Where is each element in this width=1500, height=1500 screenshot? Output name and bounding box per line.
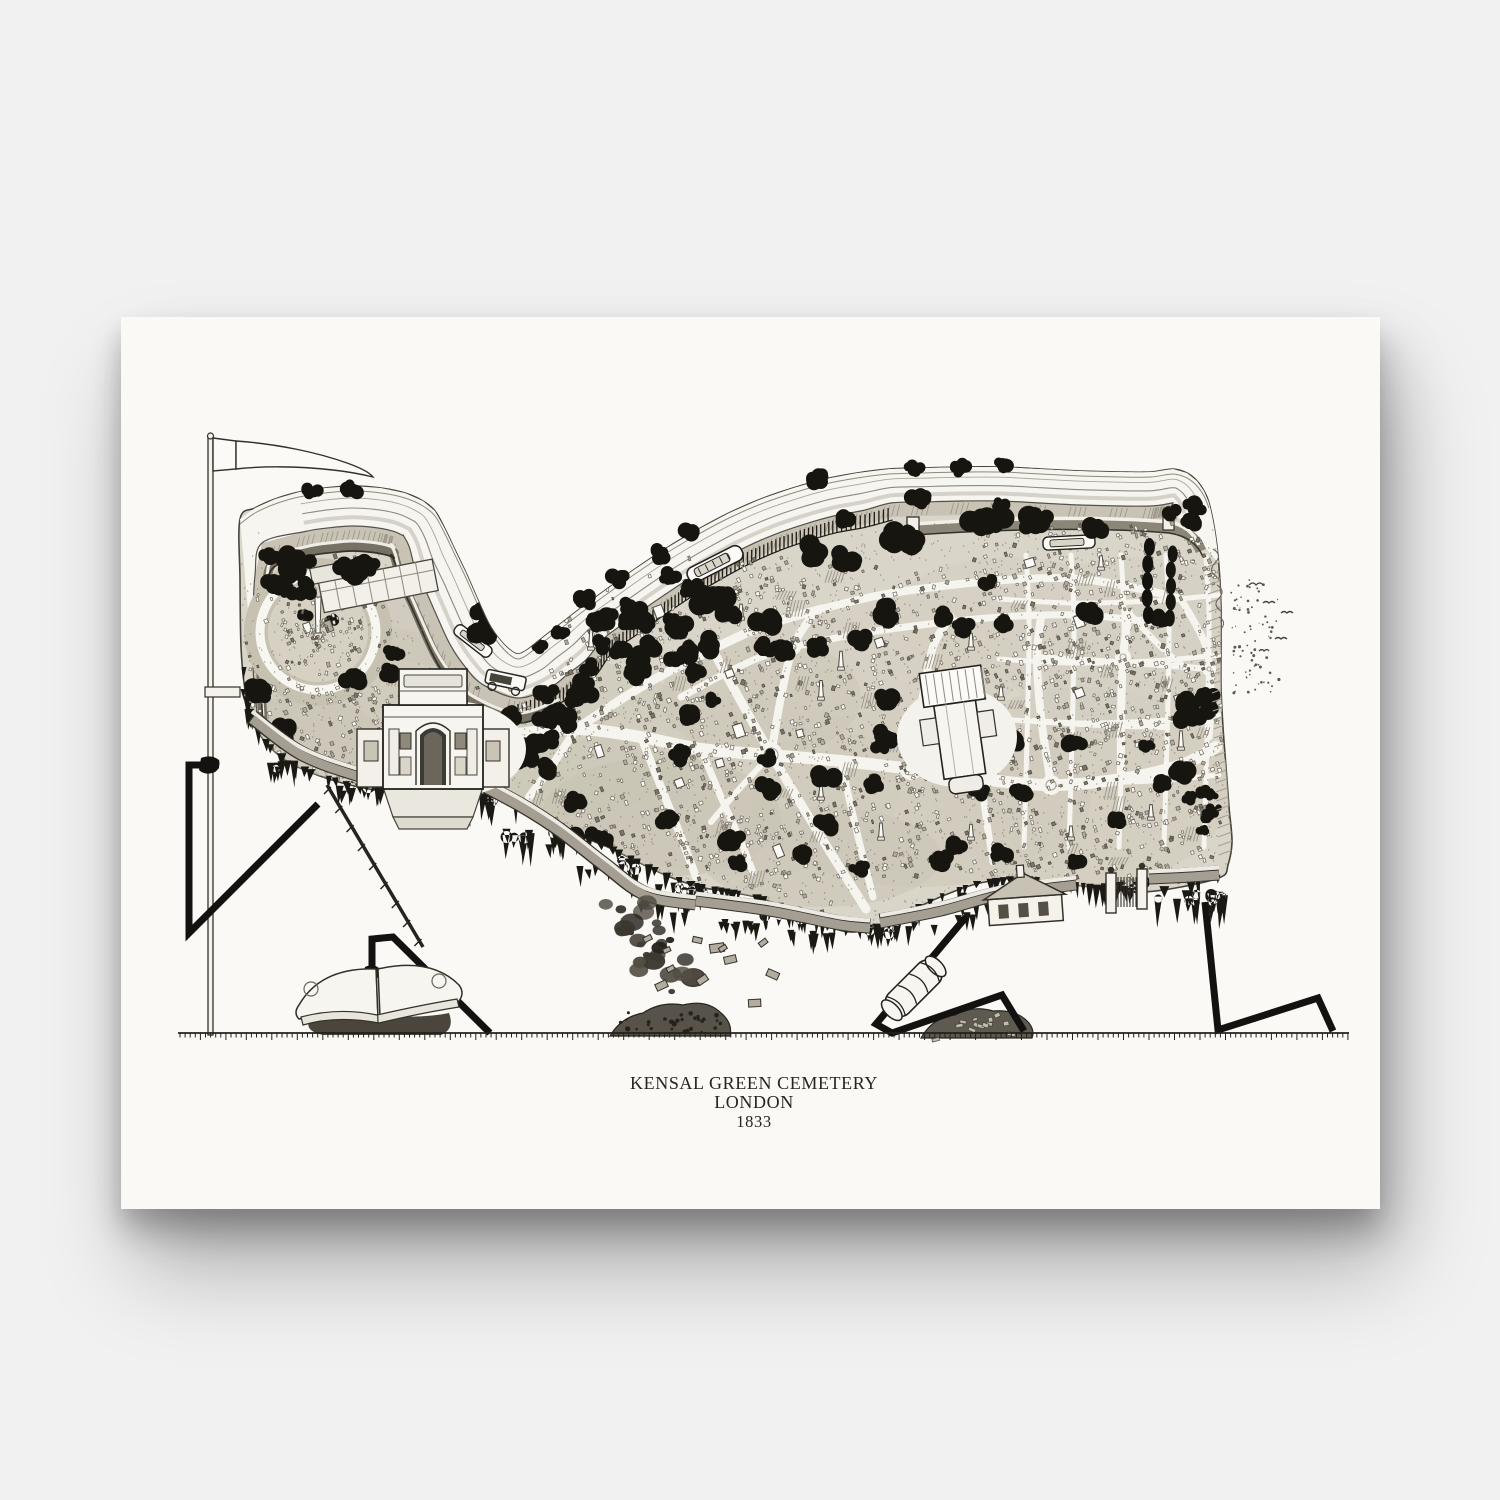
svg-text:1833: 1833: [736, 1112, 771, 1131]
svg-text:KENSAL GREEN CEMETERY: KENSAL GREEN CEMETERY: [630, 1073, 878, 1093]
svg-text:LONDON: LONDON: [714, 1092, 794, 1112]
